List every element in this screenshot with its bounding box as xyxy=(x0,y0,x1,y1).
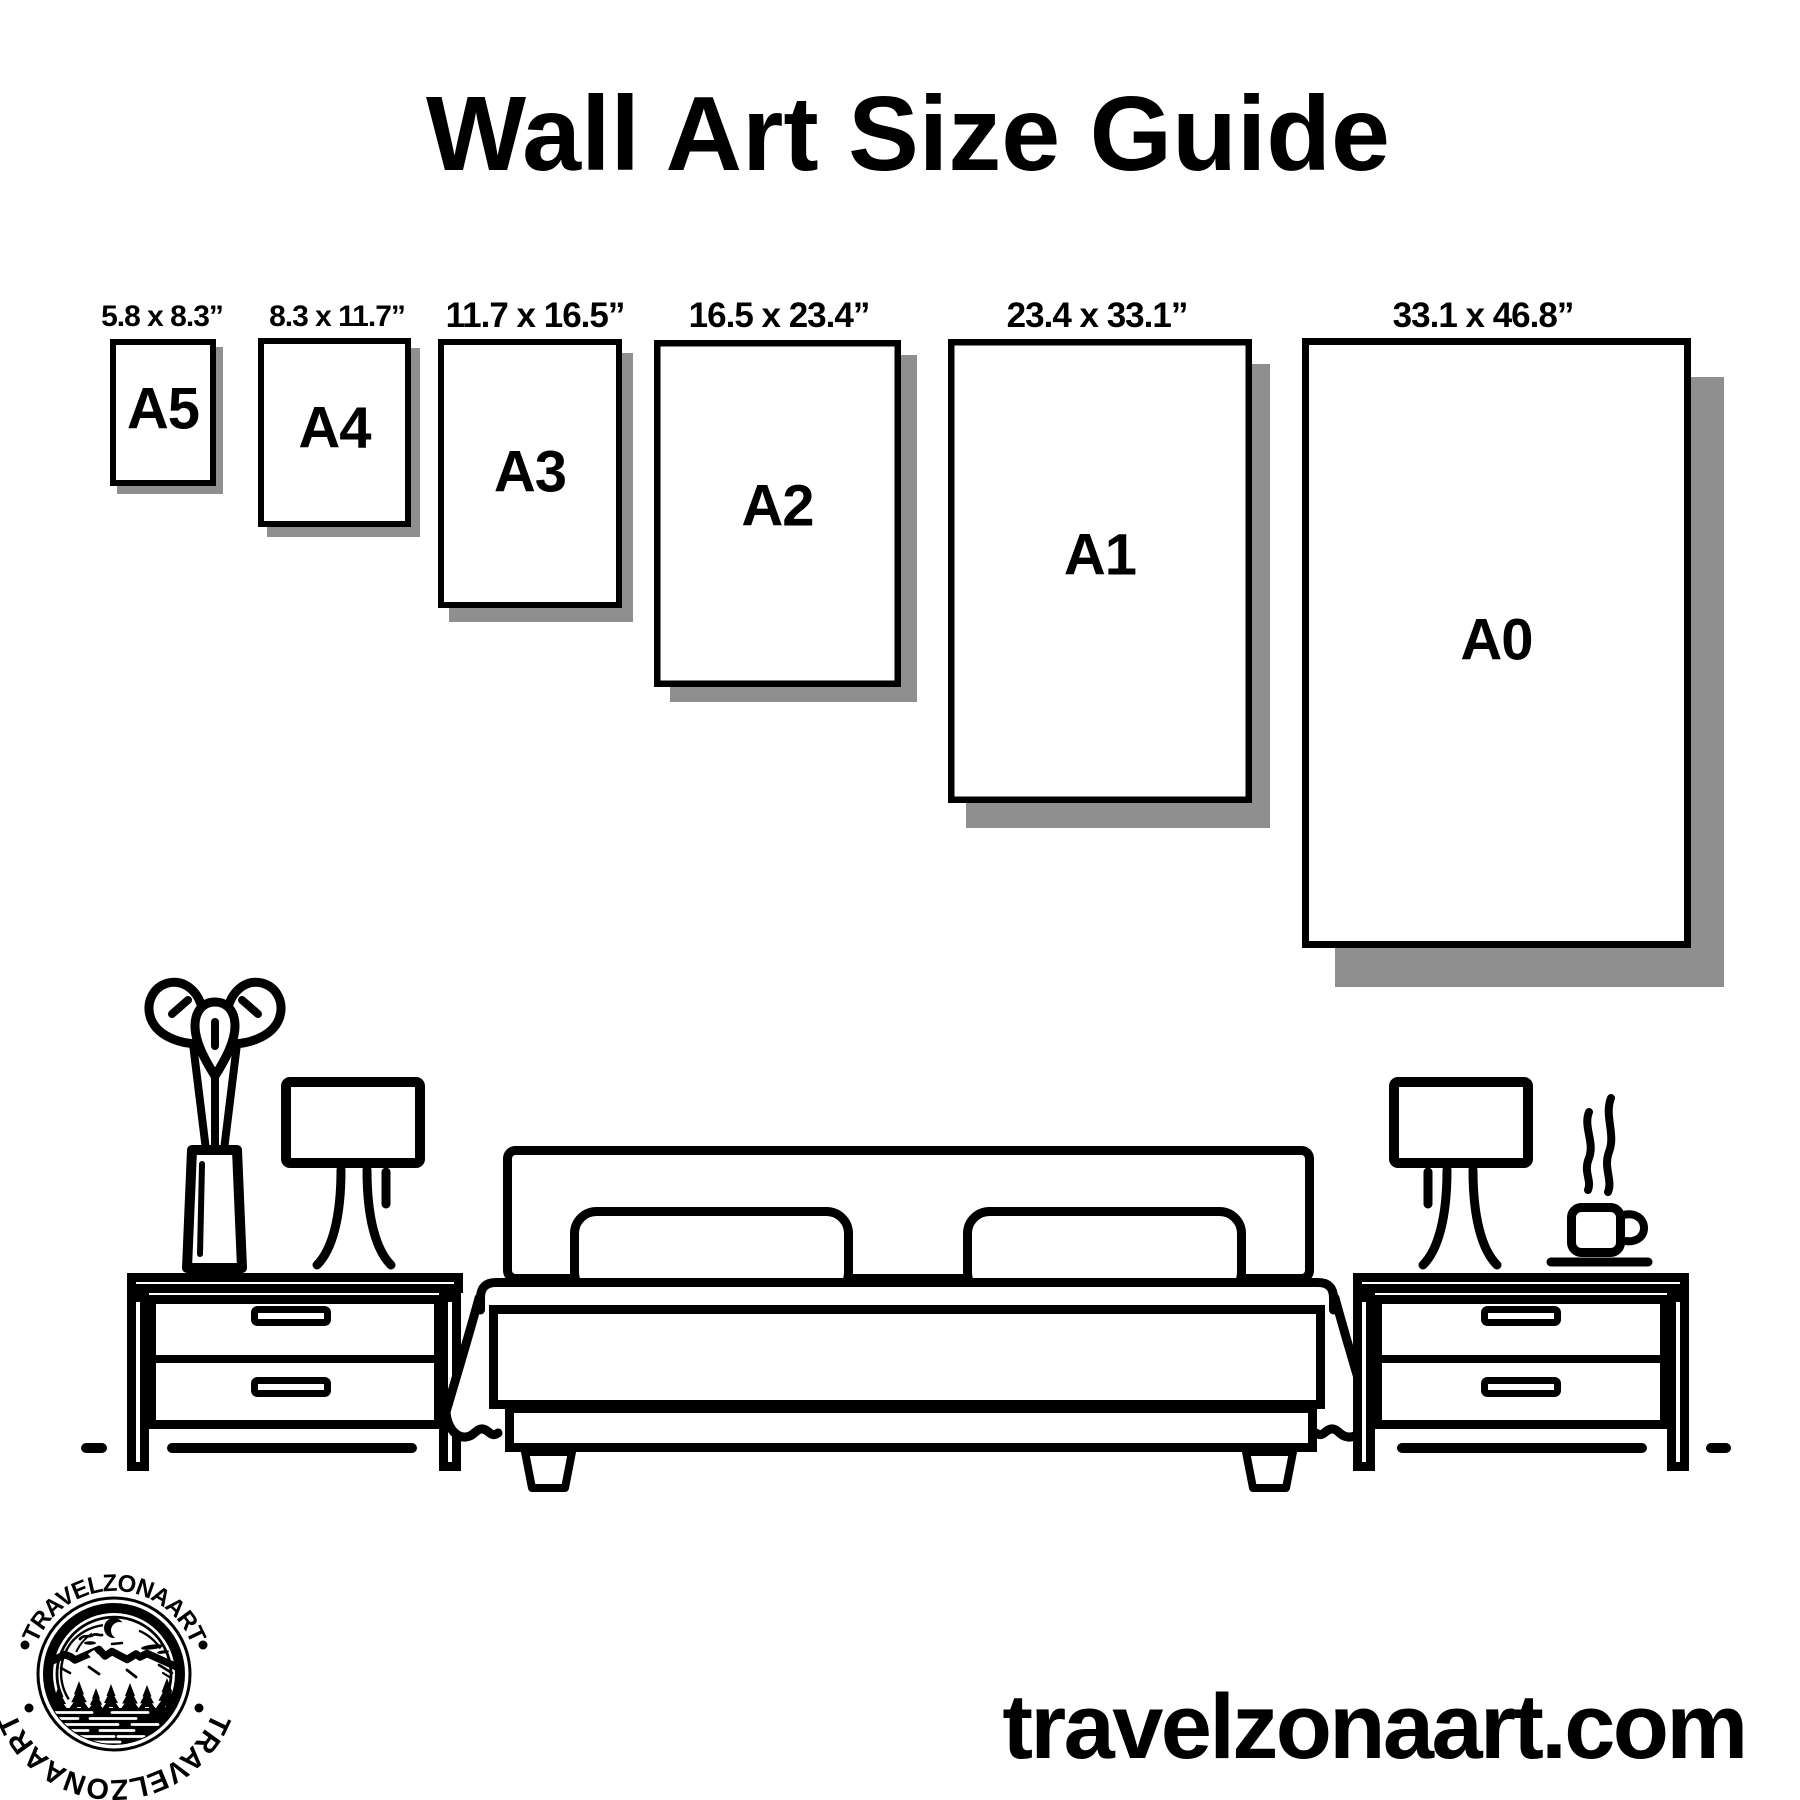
svg-text:A2: A2 xyxy=(741,474,813,539)
svg-text:11.7 x 16.5”: 11.7 x 16.5” xyxy=(446,296,625,335)
svg-text:A1: A1 xyxy=(1064,523,1136,588)
svg-text:Wall Art Size Guide: Wall Art Size Guide xyxy=(426,75,1390,193)
svg-text:5.8 x 8.3”: 5.8 x 8.3” xyxy=(101,300,223,333)
svg-text:A4: A4 xyxy=(298,396,371,461)
svg-text:8.3 x 11.7”: 8.3 x 11.7” xyxy=(269,300,405,333)
svg-text:33.1 x 46.8”: 33.1 x 46.8” xyxy=(1393,296,1574,335)
svg-text:A5: A5 xyxy=(127,377,199,442)
svg-text:23.4 x 33.1”: 23.4 x 33.1” xyxy=(1007,296,1188,335)
svg-text:travelzonaart.com: travelzonaart.com xyxy=(1002,1676,1745,1778)
svg-text:16.5 x 23.4”: 16.5 x 23.4” xyxy=(689,296,870,335)
svg-text:A0: A0 xyxy=(1460,608,1532,673)
svg-text:A3: A3 xyxy=(494,440,566,505)
